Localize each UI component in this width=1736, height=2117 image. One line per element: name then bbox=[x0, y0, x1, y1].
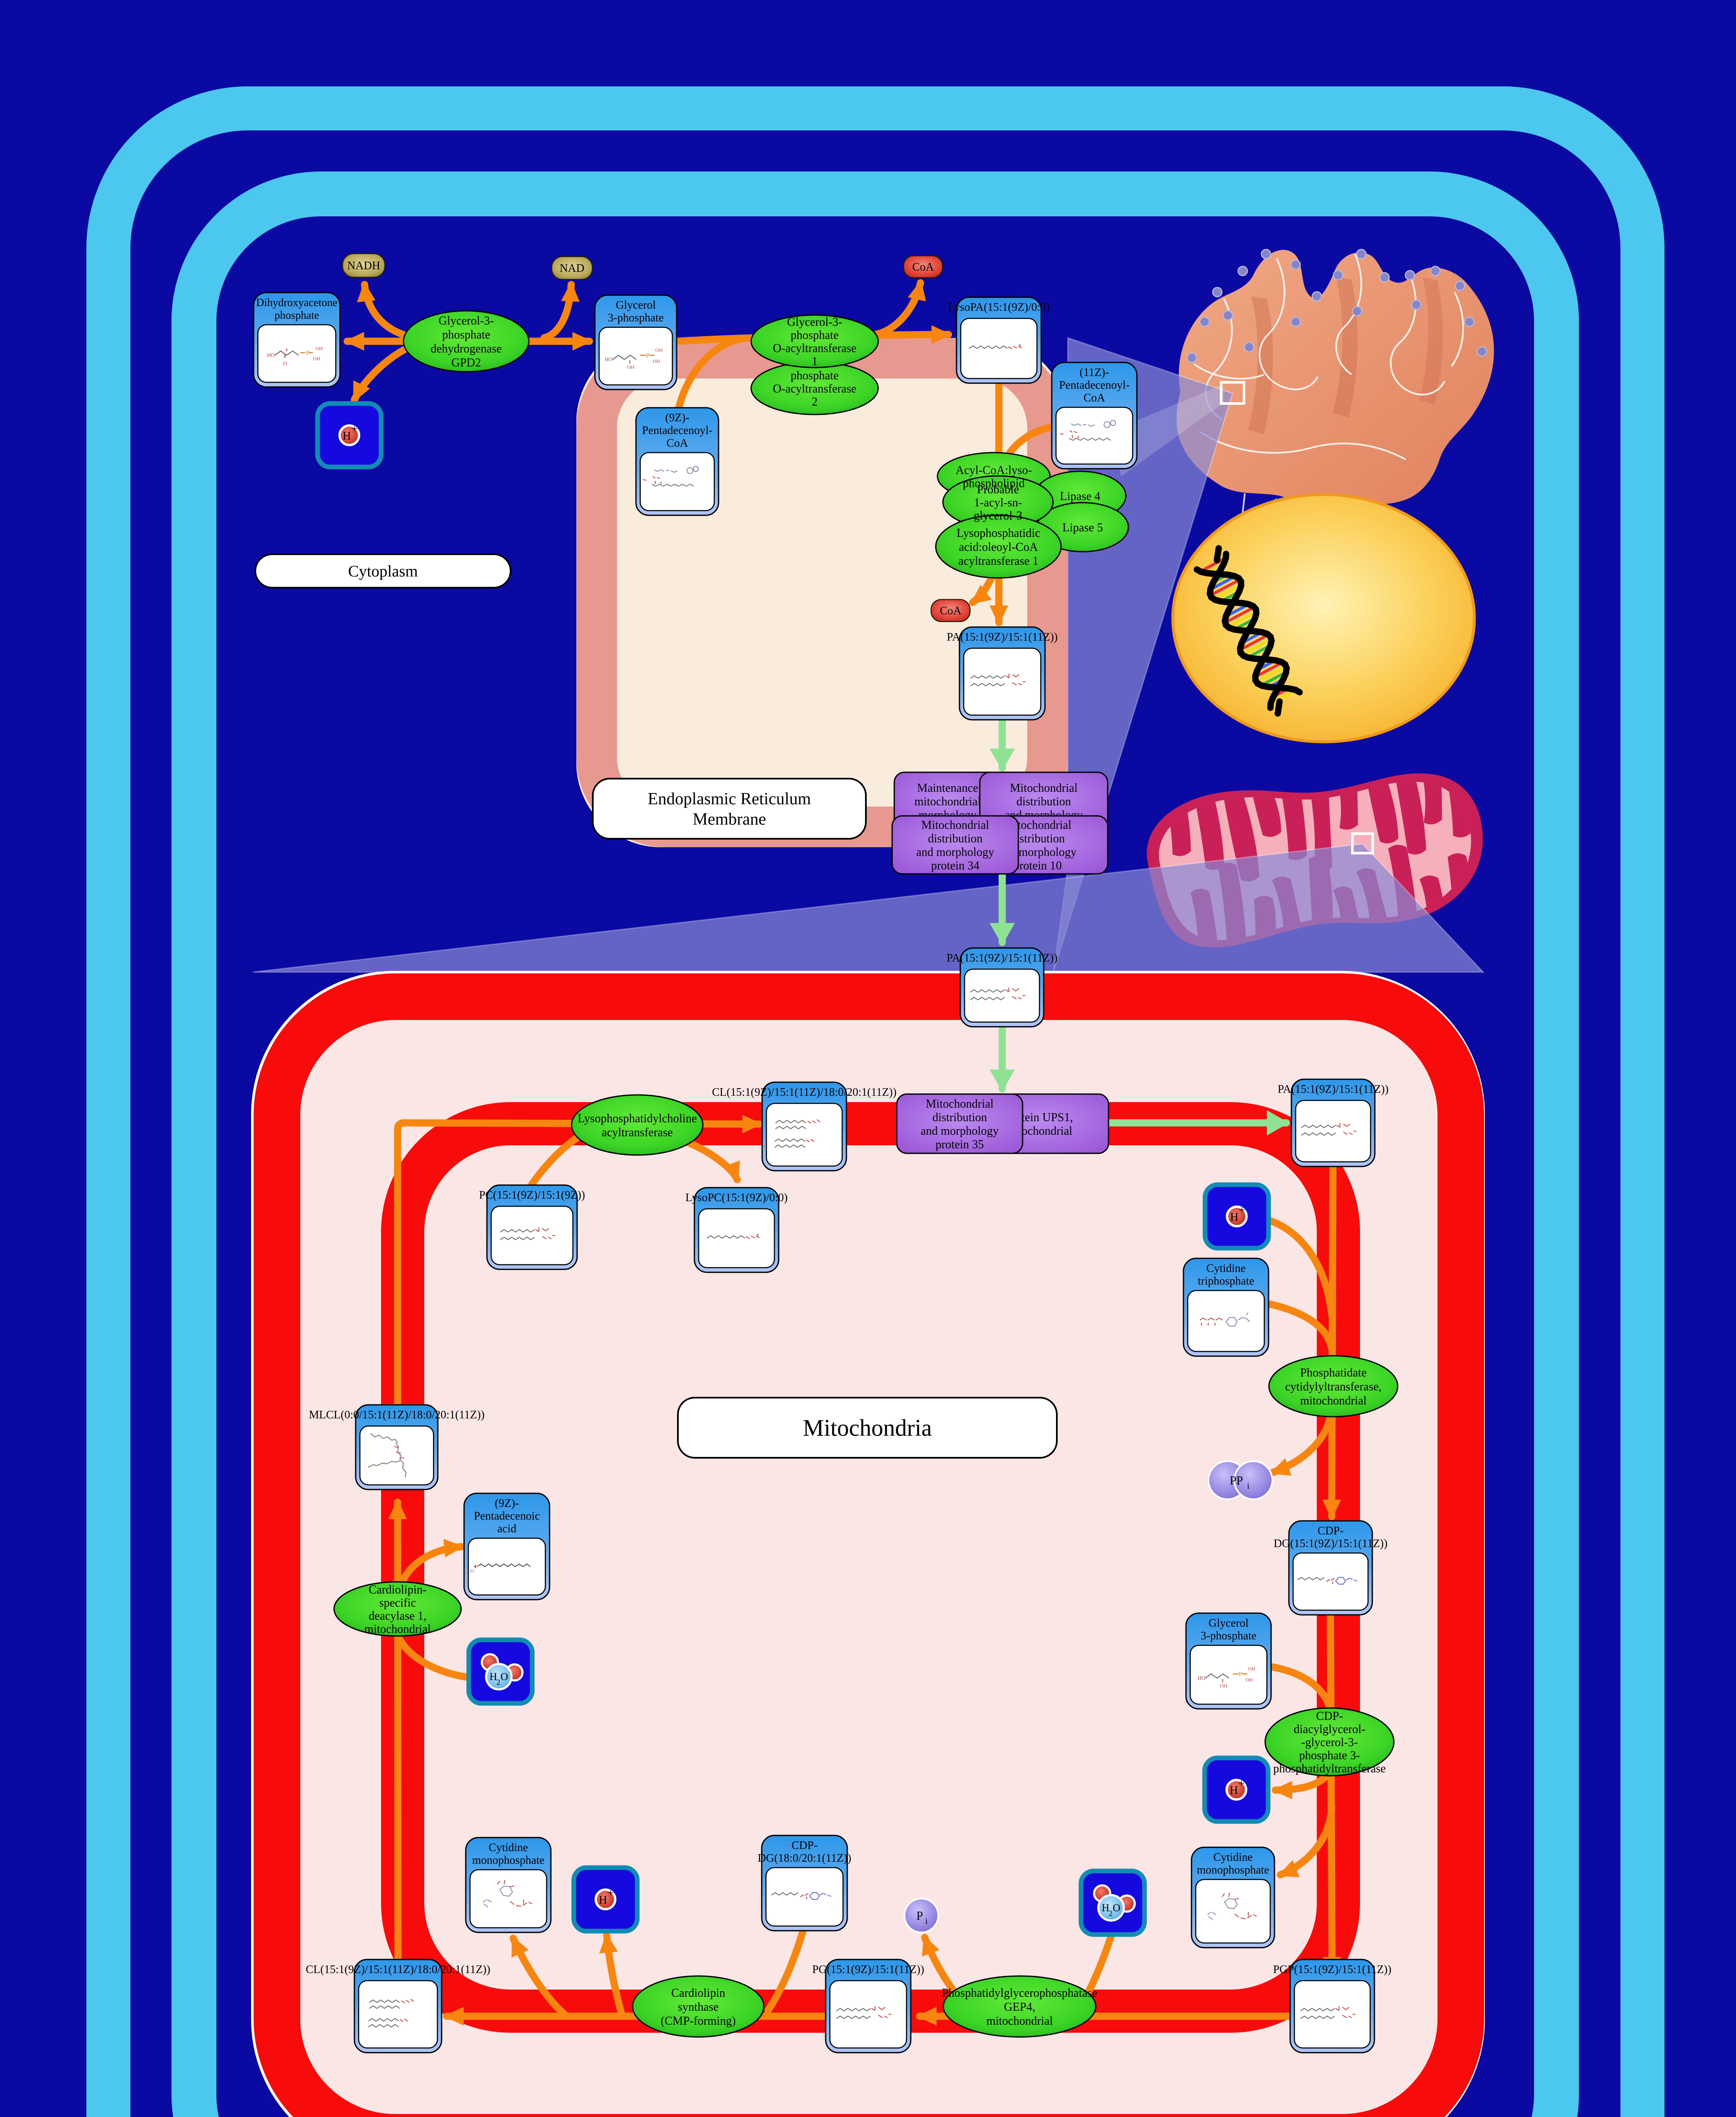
svg-text:NAD: NAD bbox=[560, 262, 585, 274]
svg-text:+: + bbox=[608, 1887, 614, 1899]
svg-text:P: P bbox=[1238, 1671, 1242, 1678]
svg-text:Probable1-acyl-sn-glycerol-3: Probable1-acyl-sn-glycerol-3 bbox=[973, 483, 1022, 522]
svg-text:Glycerol3-phosphate: Glycerol3-phosphate bbox=[1201, 1617, 1257, 1642]
svg-text:Lipase 5: Lipase 5 bbox=[1062, 521, 1103, 534]
svg-text:CoA: CoA bbox=[912, 260, 934, 273]
svg-text:2: 2 bbox=[497, 1678, 500, 1686]
svg-text:O: O bbox=[1113, 1902, 1120, 1914]
svg-text:H: H bbox=[489, 1671, 497, 1683]
svg-text:P: P bbox=[646, 352, 649, 359]
svg-text:PG(15:1(9Z)/15:1(11Z)): PG(15:1(9Z)/15:1(11Z)) bbox=[812, 1963, 924, 1976]
svg-text:PGP(15:1(9Z)/15:1(11Z)): PGP(15:1(9Z)/15:1(11Z)) bbox=[1273, 1963, 1391, 1976]
svg-text:CL(15:1(9Z)/15:1(11Z)/18:0/20:: CL(15:1(9Z)/15:1(11Z)/18:0/20:1(11Z)) bbox=[306, 1963, 490, 1976]
svg-text:OH: OH bbox=[655, 347, 663, 353]
svg-text:OH: OH bbox=[653, 358, 661, 364]
svg-text:PP: PP bbox=[1230, 1474, 1243, 1487]
svg-text:Lipase 4: Lipase 4 bbox=[1060, 490, 1100, 503]
svg-text:OH: OH bbox=[1248, 1666, 1256, 1672]
svg-text:+: + bbox=[1238, 1777, 1245, 1789]
svg-text:NADH: NADH bbox=[347, 259, 380, 272]
svg-text:H: H bbox=[1230, 1211, 1238, 1223]
svg-text:HO: HO bbox=[605, 356, 613, 362]
svg-text:O: O bbox=[283, 360, 287, 367]
svg-text:CoA: CoA bbox=[940, 604, 962, 617]
svg-text:PA(15:1(9Z)/15:1(11Z)): PA(15:1(9Z)/15:1(11Z)) bbox=[947, 951, 1058, 964]
svg-text:PA(15:1(9Z)/15:1(11Z)): PA(15:1(9Z)/15:1(11Z)) bbox=[1278, 1083, 1389, 1095]
svg-text:H: H bbox=[343, 429, 351, 442]
svg-text:CL(15:1(9Z)/15:1(11Z)/18:0/20:: CL(15:1(9Z)/15:1(11Z)/18:0/20:1(11Z)) bbox=[712, 1086, 897, 1098]
svg-text:Cytoplasm: Cytoplasm bbox=[348, 562, 418, 580]
svg-text:Lysophosphatidicacid:oleoyl-Co: Lysophosphatidicacid:oleoyl-CoAacyltrans… bbox=[956, 527, 1040, 568]
svg-text:Glycerol3-phosphate: Glycerol3-phosphate bbox=[608, 298, 664, 324]
svg-text:P: P bbox=[916, 1910, 923, 1923]
svg-text:2: 2 bbox=[1109, 1909, 1113, 1918]
svg-text:OH: OH bbox=[1220, 1683, 1227, 1689]
svg-text:Cardiolipin-specificdeacylase: Cardiolipin-specificdeacylase 1,mitochon… bbox=[364, 1584, 431, 1636]
svg-text:H: H bbox=[1230, 1784, 1238, 1796]
svg-text:H: H bbox=[599, 1893, 607, 1906]
svg-text:OH: OH bbox=[1246, 1677, 1253, 1683]
svg-text:OH: OH bbox=[627, 364, 635, 370]
svg-text:O: O bbox=[500, 1671, 508, 1683]
svg-text:LysoPA(15:1(9Z)/0:0): LysoPA(15:1(9Z)/0:0) bbox=[948, 301, 1050, 313]
svg-text:HO: HO bbox=[1197, 1675, 1205, 1681]
svg-text:H: H bbox=[1102, 1902, 1109, 1914]
svg-text:LysoPC(15:1(9Z)/0:0): LysoPC(15:1(9Z)/0:0) bbox=[686, 1191, 788, 1204]
svg-text:MLCL(0:0/15:1(11Z)/18:0/20:1(1: MLCL(0:0/15:1(11Z)/18:0/20:1(11Z)) bbox=[309, 1408, 485, 1421]
svg-text:i: i bbox=[925, 1917, 928, 1926]
svg-text:PC(15:1(9Z)/15:1(9Z)): PC(15:1(9Z)/15:1(9Z)) bbox=[479, 1188, 585, 1201]
svg-text:OH: OH bbox=[313, 356, 321, 362]
svg-text:PA(15:1(9Z)/15:1(11Z)): PA(15:1(9Z)/15:1(11Z)) bbox=[947, 630, 1058, 643]
svg-text:HO: HO bbox=[267, 352, 275, 358]
svg-text:O: O bbox=[470, 1568, 474, 1574]
svg-text:OH: OH bbox=[315, 345, 323, 351]
svg-text:+: + bbox=[351, 423, 358, 435]
svg-text:Mitochondria: Mitochondria bbox=[803, 1415, 932, 1441]
svg-text:P: P bbox=[306, 350, 310, 357]
svg-text:+: + bbox=[1239, 1204, 1245, 1216]
svg-text:i: i bbox=[1247, 1481, 1249, 1491]
